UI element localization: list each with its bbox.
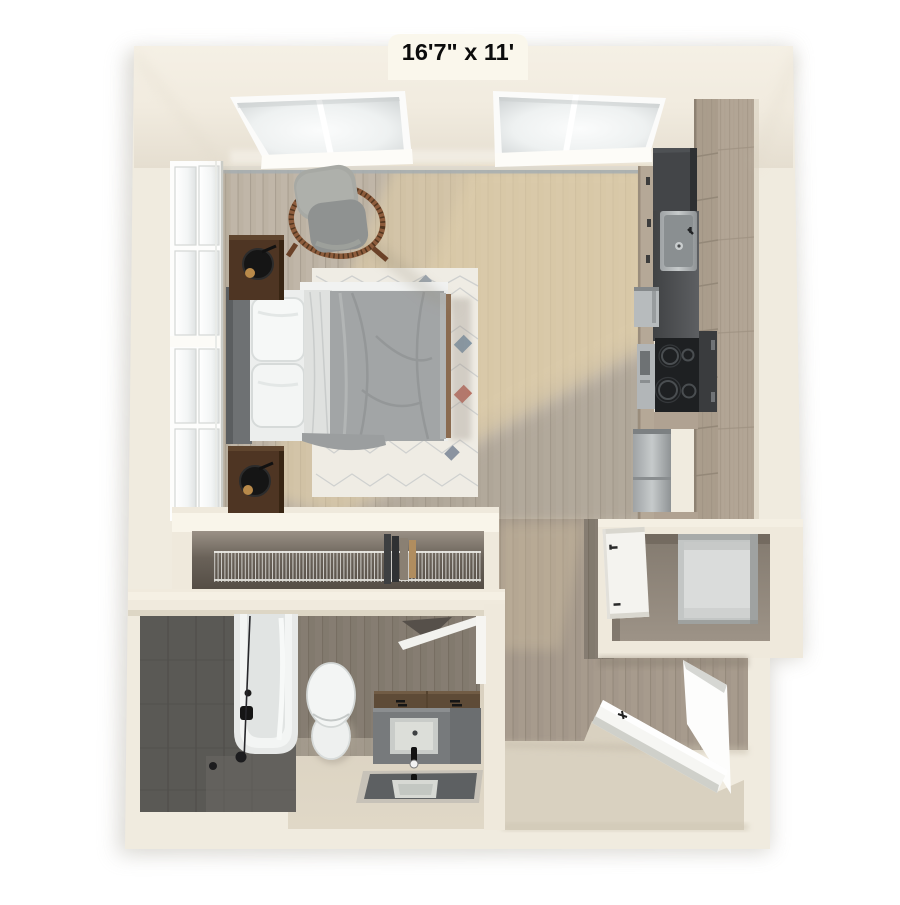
svg-text:16'7" x 11': 16'7" x 11' xyxy=(402,39,515,65)
